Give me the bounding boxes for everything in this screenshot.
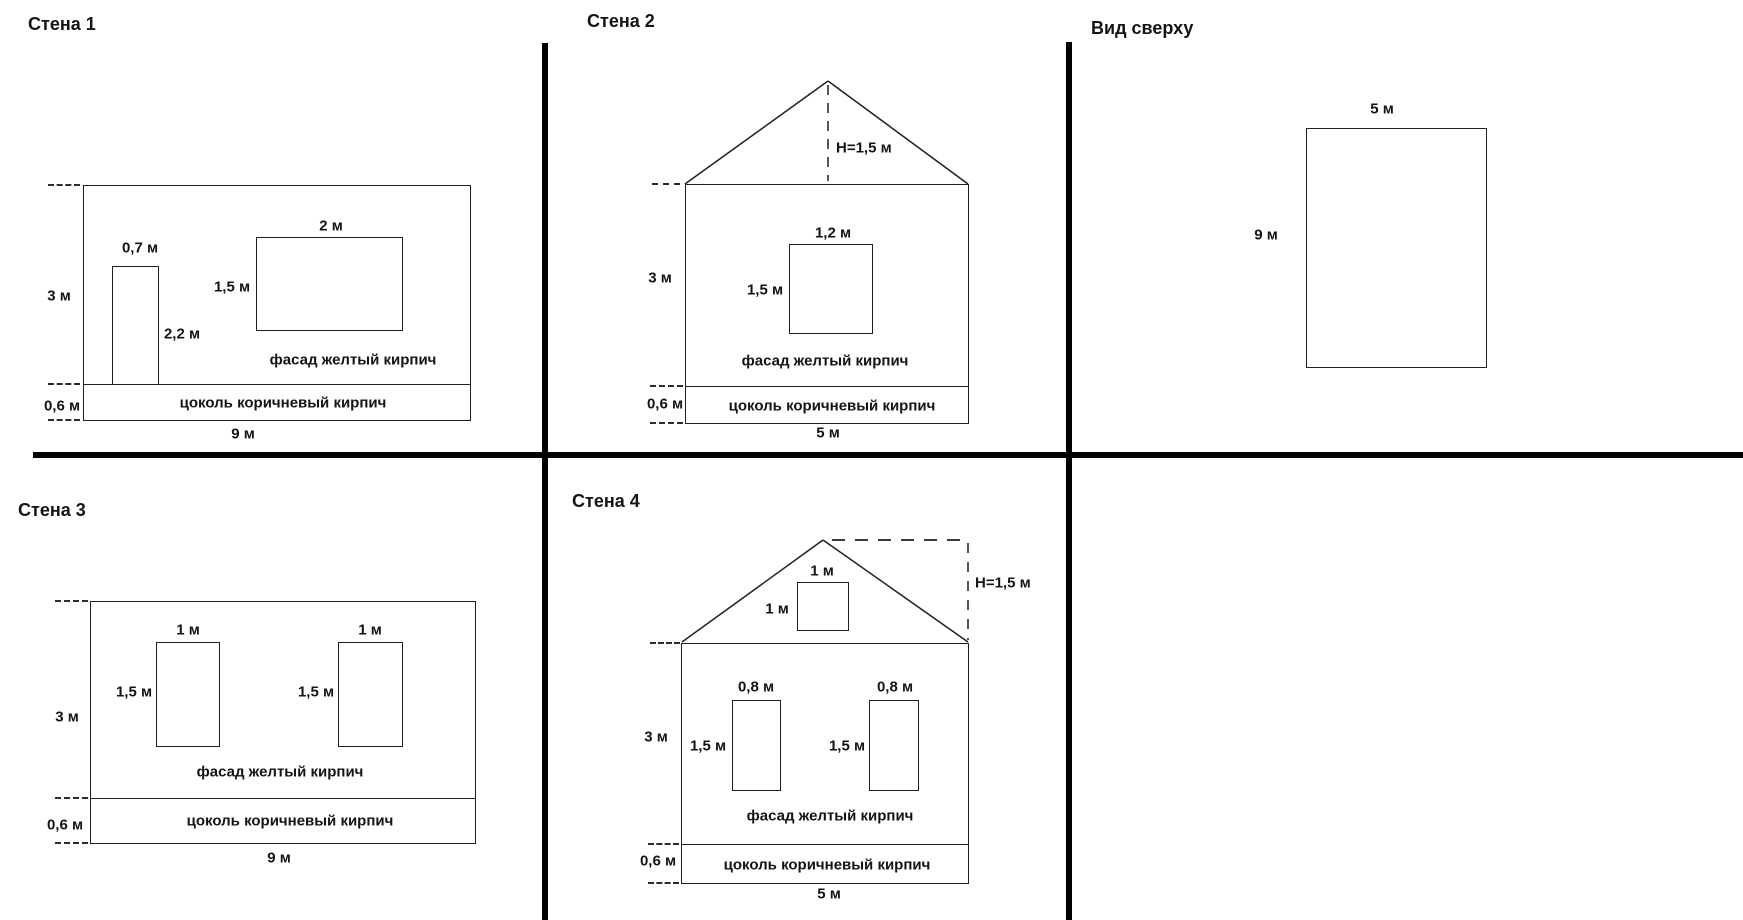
wall4-window1-rect xyxy=(732,700,781,791)
wall4-window1-height-label: 1,5 м xyxy=(690,738,726,755)
wall4-attic-window-height-label: 1 м xyxy=(765,601,789,618)
wall2-plinth-top-tick xyxy=(650,385,683,387)
wall4-bottom-tick xyxy=(648,882,679,884)
top-view-depth-label: 9 м xyxy=(1254,227,1278,244)
wall1-facade-material-label: фасад желтый кирпич xyxy=(270,352,437,369)
wall2-bottom-tick xyxy=(650,422,683,424)
wall3-plinth-height-label: 0,6 м xyxy=(47,817,83,834)
wall4-window2-height-label: 1,5 м xyxy=(829,738,865,755)
wall3-window2-width-label: 1 м xyxy=(358,622,382,639)
wall2-top-tick xyxy=(652,183,680,185)
wall1-door-width-label: 0,7 м xyxy=(122,240,158,257)
wall1-plinth-top-tick xyxy=(48,383,80,385)
wall3-window2-height-label: 1,5 м xyxy=(298,684,334,701)
wall4-roof-height-label: Н=1,5 м xyxy=(975,575,1031,592)
top-view-plan-rect xyxy=(1306,128,1487,368)
wall3-facade-material-label: фасад желтый кирпич xyxy=(197,764,364,781)
wall4-top-tick xyxy=(650,642,680,644)
wall4-title: Стена 4 xyxy=(572,491,640,512)
vertical-divider-line-1 xyxy=(542,43,548,920)
wall1-plinth-height-label: 0,6 м xyxy=(44,398,80,415)
wall2-height-label: 3 м xyxy=(648,270,672,287)
wall1-window-width-label: 2 м xyxy=(319,218,343,235)
top-view-width-label: 5 м xyxy=(1370,101,1394,118)
wall3-bottom-tick xyxy=(55,842,88,844)
wall1-door-rect xyxy=(112,266,159,385)
wall1-top-tick xyxy=(48,184,80,186)
wall4-attic-window-rect xyxy=(797,582,849,631)
wall2-facade-material-label: фасад желтый кирпич xyxy=(742,353,909,370)
wall3-window1-width-label: 1 м xyxy=(176,622,200,639)
wall2-width-label: 5 м xyxy=(816,425,840,442)
wall2-plinth-material-label: цоколь коричневый кирпич xyxy=(729,398,936,415)
wall1-title: Стена 1 xyxy=(28,14,96,35)
wall2-window-rect xyxy=(789,244,873,334)
wall3-window1-rect xyxy=(156,642,220,747)
wall4-window1-width-label: 0,8 м xyxy=(738,679,774,696)
wall1-width-label: 9 м xyxy=(231,426,255,443)
wall3-top-tick xyxy=(55,600,88,602)
wall2-title: Стена 2 xyxy=(587,11,655,32)
wall4-attic-window-width-label: 1 м xyxy=(810,563,834,580)
wall3-plinth-material-label: цоколь коричневый кирпич xyxy=(187,813,394,830)
vertical-divider-line-2 xyxy=(1066,42,1072,920)
horizontal-divider-line xyxy=(33,452,1743,458)
wall4-plinth-height-label: 0,6 м xyxy=(640,853,676,870)
wall2-roof-left-slope xyxy=(685,81,828,184)
wall4-window2-rect xyxy=(869,700,919,791)
wall2-window-width-label: 1,2 м xyxy=(815,225,851,242)
wall3-height-label: 3 м xyxy=(55,709,79,726)
wall3-width-label: 9 м xyxy=(267,850,291,867)
wall1-bottom-tick xyxy=(48,419,80,421)
wall2-plinth-height-label: 0,6 м xyxy=(647,396,683,413)
elevation-drawing-sheet: Стена 1 3 м 0,6 м 9 м 0,7 м 2,2 м 2 м 1,… xyxy=(0,0,1743,920)
wall1-window-height-label: 1,5 м xyxy=(214,279,250,296)
wall4-facade-material-label: фасад желтый кирпич xyxy=(747,808,914,825)
wall1-height-label: 3 м xyxy=(47,288,71,305)
wall3-plinth-top-tick xyxy=(55,797,88,799)
wall3-title: Стена 3 xyxy=(18,500,86,521)
top-view-title: Вид сверху xyxy=(1091,18,1193,39)
wall3-window2-rect xyxy=(338,642,403,747)
wall2-roof-height-label: Н=1,5 м xyxy=(836,140,892,157)
wall4-window2-width-label: 0,8 м xyxy=(877,679,913,696)
wall4-plinth-top-tick xyxy=(648,843,679,845)
wall4-height-label: 3 м xyxy=(644,729,668,746)
wall1-door-height-label: 2,2 м xyxy=(164,326,200,343)
wall3-window1-height-label: 1,5 м xyxy=(116,684,152,701)
wall4-plinth-material-label: цоколь коричневый кирпич xyxy=(724,857,931,874)
wall1-plinth-material-label: цоколь коричневый кирпич xyxy=(180,395,387,412)
wall4-width-label: 5 м xyxy=(817,886,841,903)
wall2-window-height-label: 1,5 м xyxy=(747,282,783,299)
wall1-window-rect xyxy=(256,237,403,331)
wall2-roof-right-slope xyxy=(828,81,968,184)
